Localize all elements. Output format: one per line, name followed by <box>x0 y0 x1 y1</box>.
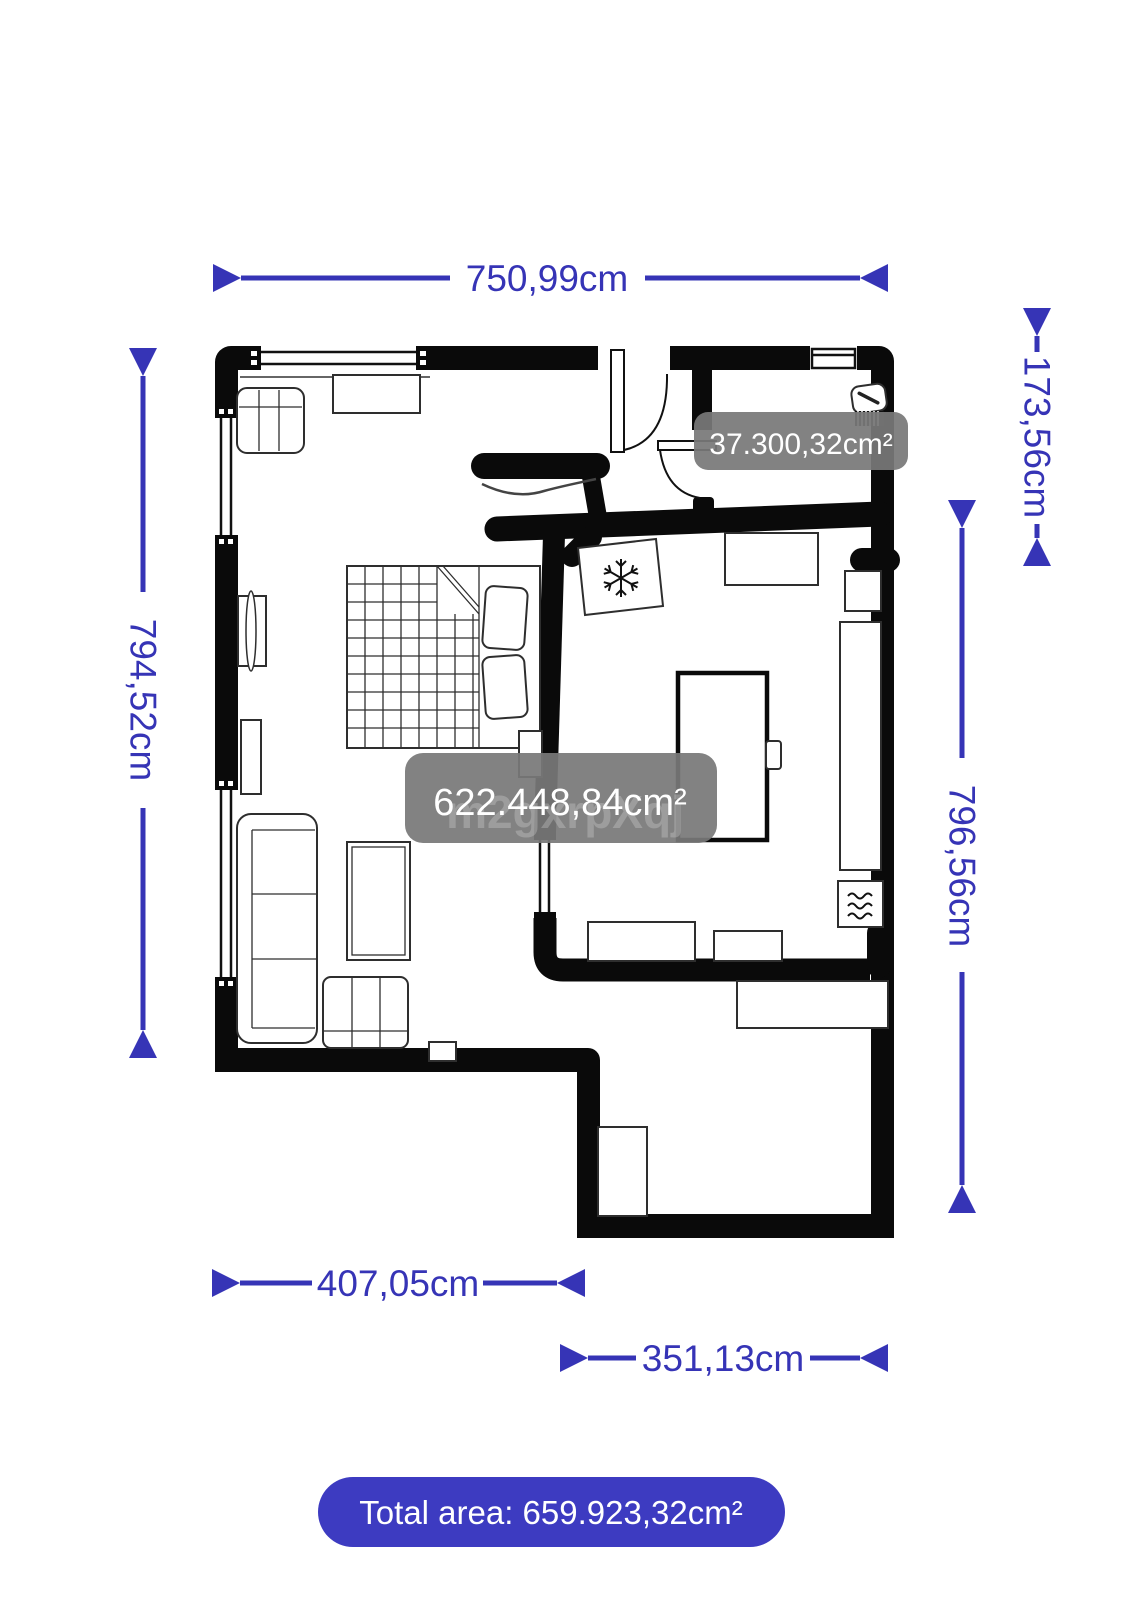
coffee-table <box>347 842 410 960</box>
radiator-mirror <box>238 591 266 671</box>
kitchen-cabinet <box>845 571 881 611</box>
washing-machine <box>838 881 883 927</box>
pillow <box>482 655 528 720</box>
bathroom-area-label[interactable]: 37.300,32cm² <box>694 412 908 470</box>
desk <box>333 375 420 413</box>
chair <box>766 741 781 769</box>
ottoman <box>323 977 408 1048</box>
window-bathroom <box>810 344 857 372</box>
main-area-label[interactable]: m2gxrpXqj 622.448,84cm² <box>405 753 717 843</box>
sofa <box>237 814 317 1043</box>
kitchen-counter-bottom <box>588 922 695 961</box>
dimension-top-text: 750,99cm <box>466 258 629 299</box>
window-left-upper <box>215 405 238 548</box>
total-area-text: Total area: 659.923,32cm² <box>359 1494 742 1531</box>
sink-icon <box>850 383 887 414</box>
dimension-left-text: 794,52cm <box>123 619 164 782</box>
dimension-right: 796,56cm <box>942 500 983 1213</box>
lower-room-furniture <box>598 981 888 1216</box>
bathroom-area-text: 37.300,32cm² <box>709 428 892 461</box>
kitchen-furniture <box>578 533 883 961</box>
dimension-left: 794,52cm <box>123 348 164 1058</box>
entry-door <box>598 344 670 452</box>
pillow <box>482 586 528 651</box>
refrigerator <box>578 539 663 615</box>
kitchen-counter-right <box>840 622 881 870</box>
wall-vent <box>429 1042 456 1061</box>
dimension-right-upper: 173,56cm <box>1017 308 1058 566</box>
bed <box>347 566 540 748</box>
corner-armchair <box>237 388 304 453</box>
dimension-right-upper-text: 173,56cm <box>1017 356 1058 519</box>
door-swing-arc <box>660 450 700 498</box>
kitchen-counter-top <box>725 533 818 585</box>
floorplan-screen: 37.300,32cm² m2gxrpXqj 622.448,84cm² 750… <box>0 0 1127 1600</box>
wardrobe-rail <box>482 479 596 494</box>
window-top <box>240 344 430 377</box>
kitchen-counter-bottom-2 <box>714 931 782 961</box>
counter <box>737 981 888 1028</box>
dimension-right-text: 796,56cm <box>942 785 983 948</box>
door-swing-arc <box>624 374 667 450</box>
window-left-lower <box>215 777 238 990</box>
wall-shelf <box>241 720 261 794</box>
cabinet <box>598 1127 647 1216</box>
dimension-bottom-right-text: 351,13cm <box>642 1338 805 1379</box>
dimension-bottom-right: 351,13cm <box>560 1338 888 1379</box>
dimension-bottom-left-text: 407,05cm <box>317 1263 480 1304</box>
dimension-bottom-left: 407,05cm <box>212 1263 585 1304</box>
main-area-text: 622.448,84cm² <box>433 782 687 824</box>
dimension-top: 750,99cm <box>213 258 888 299</box>
total-area-pill: Total area: 659.923,32cm² <box>318 1477 785 1547</box>
